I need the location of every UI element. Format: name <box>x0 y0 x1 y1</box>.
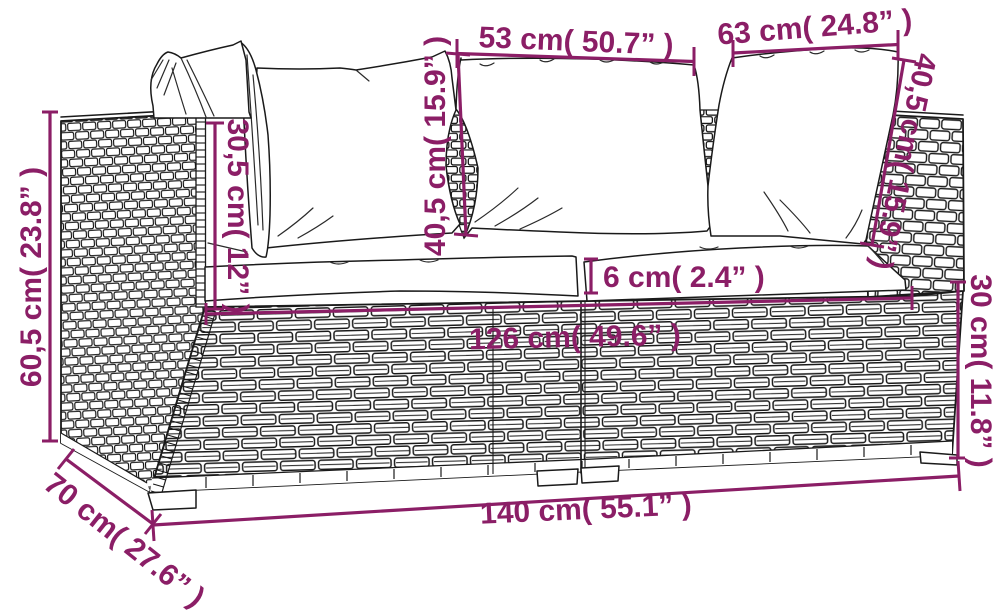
svg-text:60,5 cm( 23.8” ): 60,5 cm( 23.8” ) <box>15 167 48 387</box>
svg-text:6 cm( 2.4” ): 6 cm( 2.4” ) <box>603 261 765 294</box>
svg-text:30 cm( 11.8” ): 30 cm( 11.8” ) <box>964 274 997 467</box>
svg-text:30,5 cm( 12” ): 30,5 cm( 12” ) <box>221 118 254 313</box>
svg-text:126 cm( 49.6” ): 126 cm( 49.6” ) <box>469 319 681 356</box>
svg-text:40,5 cm( 15.9” ): 40,5 cm( 15.9” ) <box>419 36 452 256</box>
